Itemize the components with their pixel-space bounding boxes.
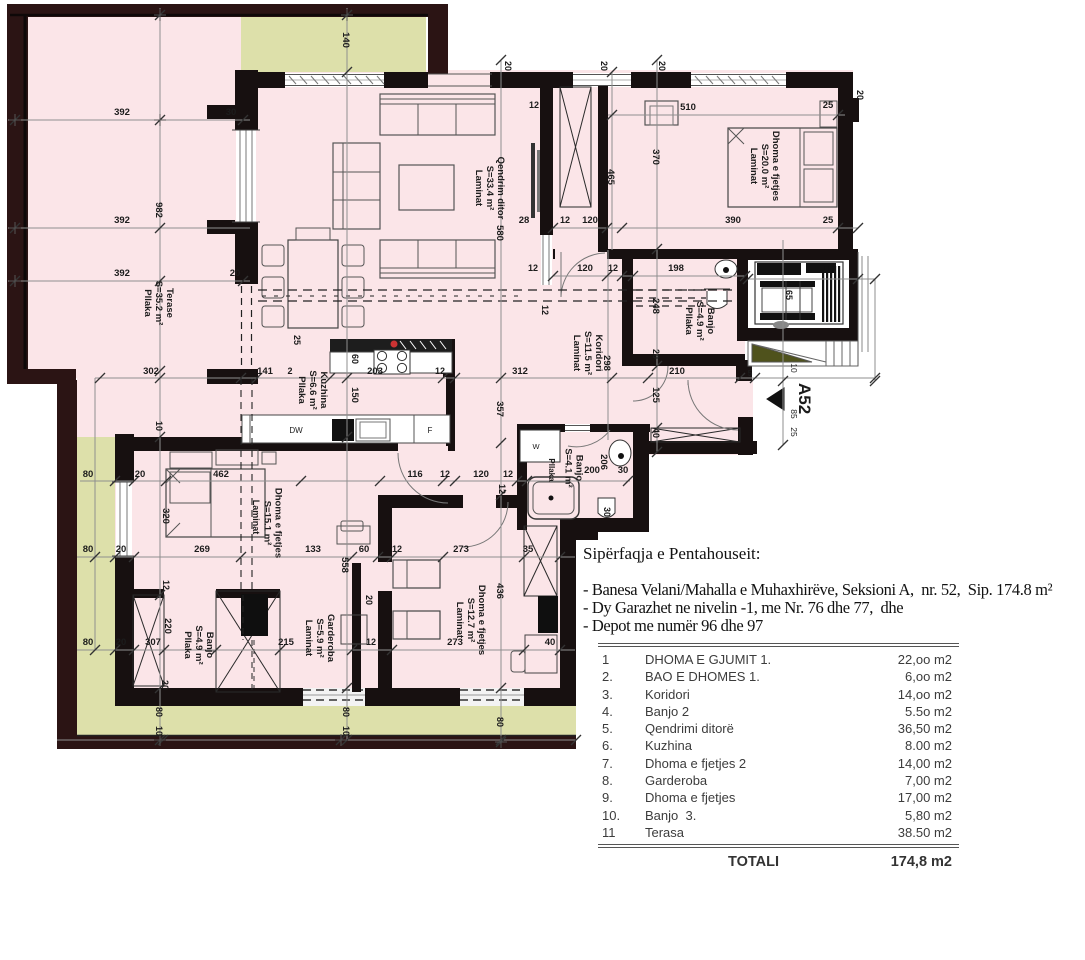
svg-text:20: 20 [855,90,865,100]
svg-text:W: W [532,442,540,451]
svg-text:248: 248 [650,298,661,314]
svg-text:392: 392 [114,268,130,279]
svg-text:28: 28 [519,215,530,226]
svg-text:Laminat: Laminat [251,500,261,535]
svg-text:357: 357 [494,401,505,417]
svg-text:65: 65 [784,290,794,300]
svg-text:20: 20 [116,544,127,555]
svg-text:Pllaka: Pllaka [547,458,556,482]
svg-text:25: 25 [789,427,799,437]
svg-text:30: 30 [602,507,612,517]
svg-text:269: 269 [194,544,210,555]
svg-text:133: 133 [305,544,321,555]
svg-text:Qendrim ditor: Qendrim ditor [495,157,506,220]
svg-text:215: 215 [278,637,295,648]
svg-text:12: 12 [366,637,376,647]
svg-text:12: 12 [608,263,618,273]
svg-text:Laminat: Laminat [303,620,314,657]
svg-text:982: 982 [153,202,164,218]
svg-text:S=4.1 m²: S=4.1 m² [563,448,574,487]
svg-text:302: 302 [143,366,159,377]
svg-text:20: 20 [364,595,374,605]
svg-text:S=33.4 m²: S=33.4 m² [484,166,495,211]
svg-text:10: 10 [154,726,164,736]
svg-text:Garderoba: Garderoba [325,614,336,663]
svg-text:S=5.9 m²: S=5.9 m² [314,618,325,657]
svg-text:30: 30 [618,465,629,476]
svg-text:Dhoma e fjetjes: Dhoma e fjetjes [476,585,487,655]
svg-text:120: 120 [582,215,598,226]
svg-text:80: 80 [341,707,351,717]
svg-text:Pllaka: Pllaka [182,631,193,659]
svg-text:120: 120 [577,263,593,274]
svg-text:S=4.9 m²: S=4.9 m² [694,301,705,340]
svg-text:12: 12 [440,469,450,479]
svg-text:25: 25 [823,100,834,111]
svg-text:206: 206 [598,454,609,470]
svg-text:Pllaka: Pllaka [683,307,694,335]
svg-text:60: 60 [359,544,370,555]
svg-text:S=11.5 m²: S=11.5 m² [582,331,593,375]
svg-text:60: 60 [350,354,360,364]
svg-text:273: 273 [447,637,463,648]
svg-text:10: 10 [154,421,164,431]
svg-text:200: 200 [584,465,600,476]
svg-text:20: 20 [651,349,661,359]
svg-text:Pllaka: Pllaka [142,289,153,317]
svg-text:12: 12 [529,100,539,110]
svg-text:S=35.2 m²: S=35.2 m² [153,281,164,326]
svg-text:20: 20 [116,637,127,648]
svg-text:210: 210 [669,366,685,377]
svg-text:12: 12 [161,580,171,590]
svg-text:80: 80 [83,637,94,648]
svg-text:125: 125 [650,387,661,404]
svg-text:40: 40 [545,637,556,648]
svg-text:12: 12 [503,469,513,479]
svg-text:12: 12 [528,263,538,273]
svg-text:Banjo: Banjo [574,455,585,482]
svg-text:DW: DW [289,426,303,435]
svg-text:370: 370 [650,149,661,165]
svg-text:12: 12 [540,305,550,315]
svg-text:S=12.7 m²: S=12.7 m² [465,598,476,643]
svg-text:S=20.0 m²: S=20.0 m² [759,144,770,189]
svg-text:150: 150 [349,387,360,403]
svg-text:312: 312 [512,366,528,377]
svg-text:116: 116 [407,469,422,480]
svg-text:120: 120 [473,469,489,480]
svg-text:80: 80 [83,469,94,480]
svg-text:2: 2 [287,366,292,376]
svg-text:392: 392 [114,215,130,226]
svg-text:80: 80 [154,707,164,717]
svg-text:20: 20 [503,61,513,71]
svg-text:307: 307 [145,637,161,648]
svg-text:80: 80 [83,544,94,555]
svg-text:10: 10 [789,363,799,373]
svg-text:320: 320 [160,508,171,524]
svg-text:220: 220 [162,618,173,634]
svg-text:12: 12 [392,544,402,554]
svg-text:Banjo: Banjo [705,308,716,335]
svg-text:S=6.6 m²: S=6.6 m² [307,370,318,409]
svg-text:203: 203 [367,366,383,377]
svg-text:40: 40 [651,428,661,438]
svg-text:Dhoma e fjetjes: Dhoma e fjetjes [273,488,284,558]
svg-text:510: 510 [680,102,696,113]
svg-text:580: 580 [494,225,505,241]
svg-text:S=15.1 m²: S=15.1 m² [262,501,273,546]
svg-text:390: 390 [725,215,741,226]
svg-text:S=4.9 m²: S=4.9 m² [193,625,204,664]
svg-text:462: 462 [213,469,229,480]
svg-text:273: 273 [453,544,469,555]
svg-text:465: 465 [605,169,616,186]
svg-text:12: 12 [435,366,445,376]
svg-text:30: 30 [226,107,237,118]
svg-text:5: 5 [748,368,753,378]
svg-text:20: 20 [160,680,170,690]
svg-text:20: 20 [599,61,609,71]
svg-text:25: 25 [292,335,302,345]
svg-text:Laminat: Laminat [748,148,759,185]
svg-text:Laminat: Laminat [454,602,465,639]
svg-text:20: 20 [230,268,241,279]
svg-text:Laminat: Laminat [473,170,484,207]
svg-text:F: F [428,426,433,435]
svg-text:20: 20 [657,61,667,71]
svg-text:85: 85 [789,409,799,419]
svg-text:25: 25 [823,215,834,226]
svg-text:Koridori: Koridori [593,335,604,372]
svg-text:Pllaka: Pllaka [296,376,307,404]
svg-text:558: 558 [339,557,350,573]
svg-text:12: 12 [560,215,570,225]
svg-text:Kuzhina: Kuzhina [318,372,329,410]
svg-text:Terase: Terase [164,288,175,318]
svg-text:12: 12 [497,484,507,494]
svg-text:141: 141 [257,366,274,377]
svg-text:436: 436 [494,583,505,599]
svg-text:Dhoma e fjetjes: Dhoma e fjetjes [770,131,781,201]
svg-text:198: 198 [668,263,684,274]
svg-text:35: 35 [523,544,534,555]
svg-text:80: 80 [495,717,505,727]
svg-text:20: 20 [135,469,146,480]
svg-text:Laminat: Laminat [571,335,582,372]
svg-text:140: 140 [340,32,351,48]
svg-text:10: 10 [341,726,351,736]
svg-text:Banjo: Banjo [204,632,215,659]
svg-text:392: 392 [114,107,130,118]
